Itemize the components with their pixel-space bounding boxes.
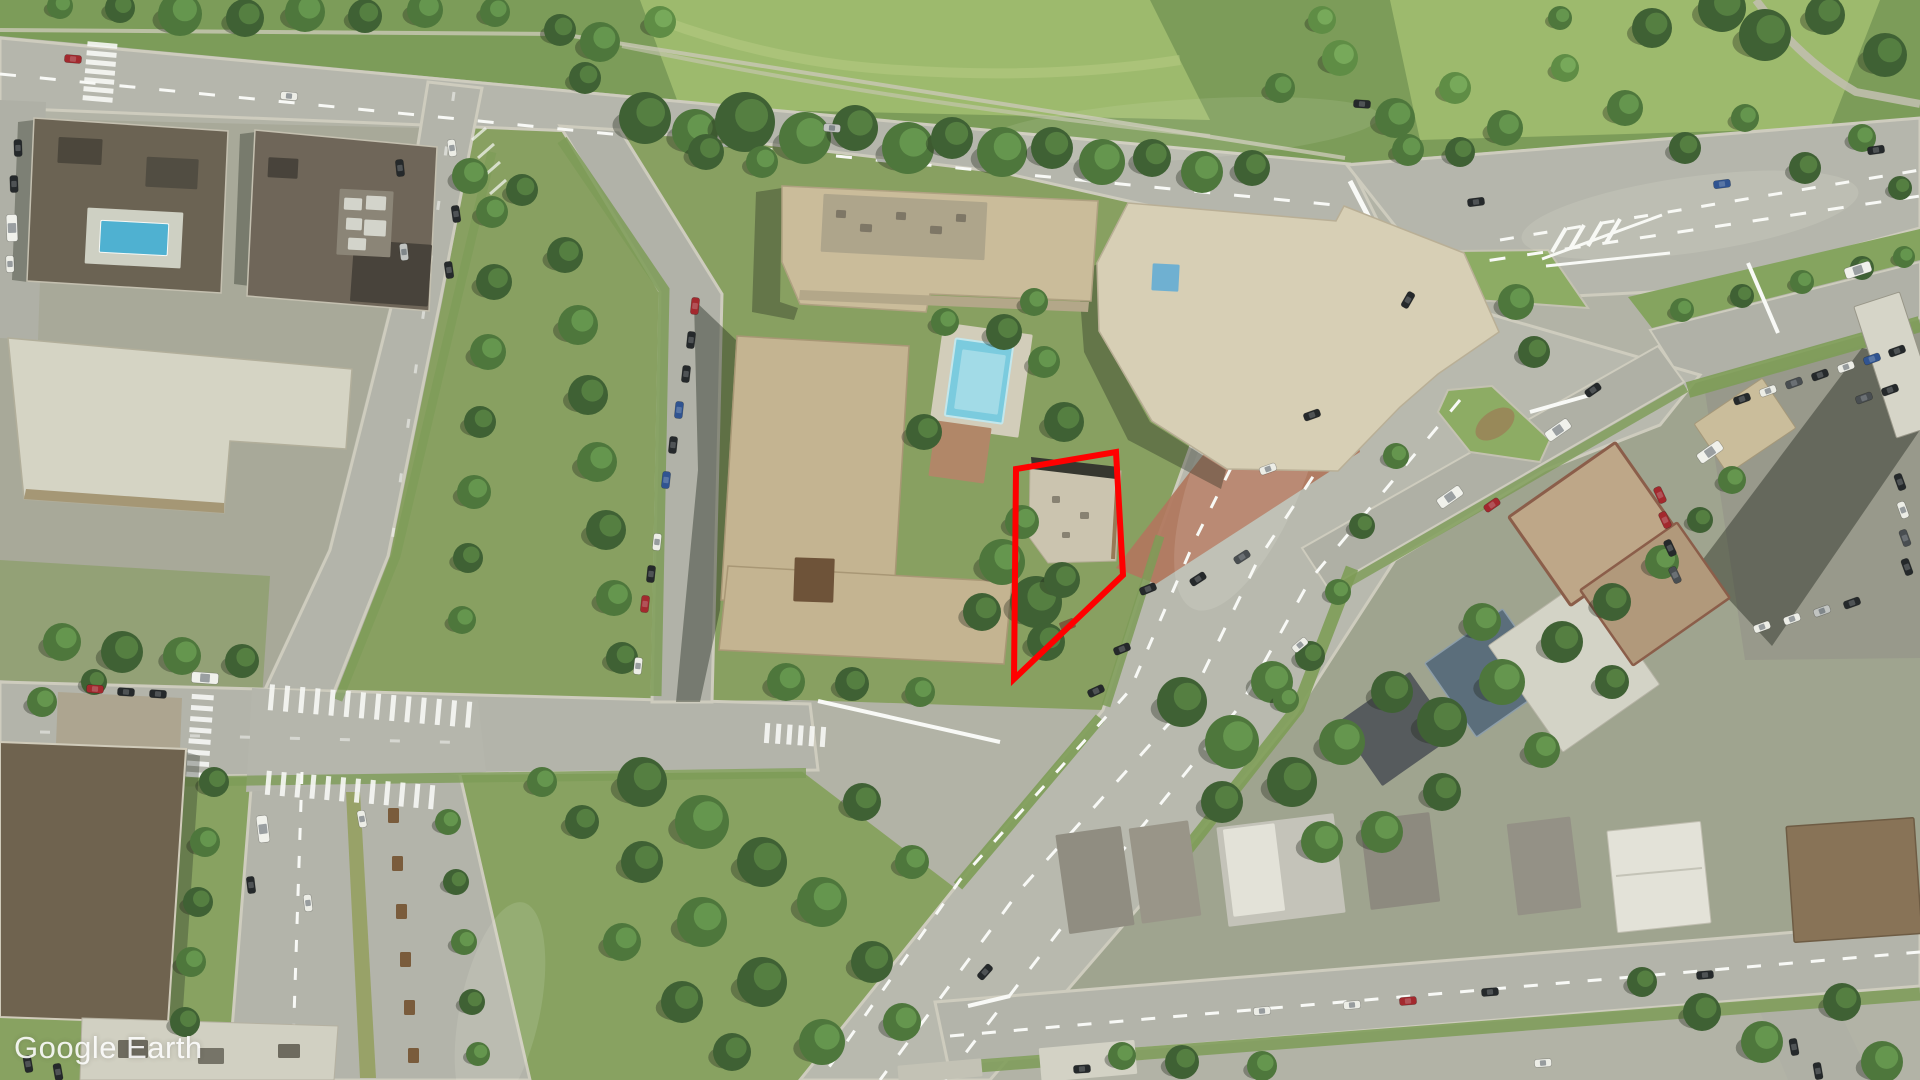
aerial-map-canvas[interactable] — [0, 0, 1920, 1080]
tint-layer — [0, 0, 1920, 1080]
map-viewport[interactable]: Google Earth — [0, 0, 1920, 1080]
